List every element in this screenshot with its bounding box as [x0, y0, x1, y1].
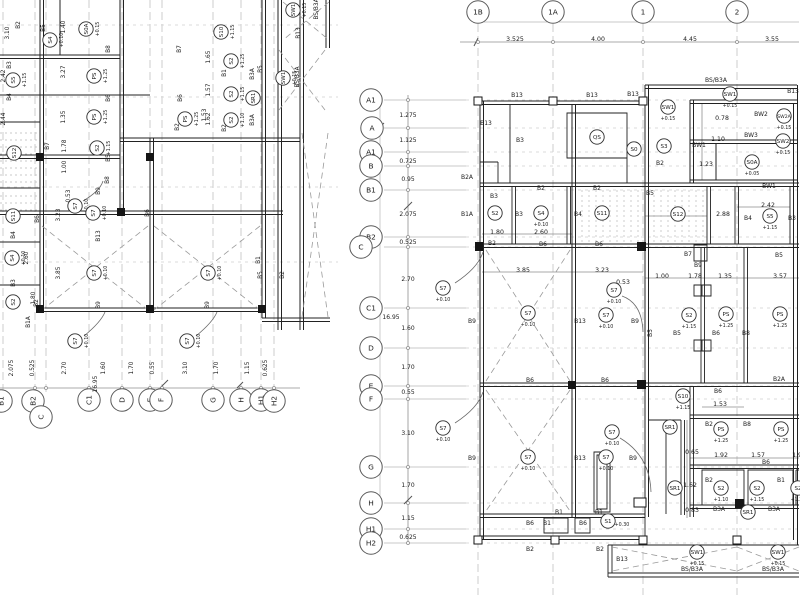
slab-label: S7+0.10	[68, 334, 90, 349]
svg-text:+0.10: +0.10	[607, 299, 622, 305]
slab-label: S2+1.10	[714, 481, 729, 503]
svg-text:+0.10: +0.10	[84, 334, 90, 349]
beam-label: B2	[526, 546, 534, 553]
svg-text:+1.15: +1.15	[750, 497, 765, 503]
dim-label: 1.60	[401, 325, 415, 332]
dim-label: 0.65	[685, 449, 699, 456]
svg-text:B3A: B3A	[250, 114, 256, 126]
dim-label: 1.60	[101, 361, 107, 374]
svg-text:B3: B3	[516, 137, 524, 144]
beam-label: B1	[543, 520, 551, 527]
svg-text:S2: S2	[229, 116, 235, 123]
beam-label: B6	[526, 377, 534, 384]
slab-label: PS+1.25	[774, 422, 789, 444]
svg-text:B4: B4	[7, 93, 13, 101]
svg-text:2.44: 2.44	[1, 112, 7, 125]
slab-label: SW2+0.15	[776, 134, 791, 156]
dim-label: 3.27	[61, 65, 67, 78]
beam-label: B9	[631, 318, 639, 325]
svg-text:B9: B9	[694, 262, 702, 269]
svg-text:S10: S10	[219, 26, 225, 37]
slab-label: PS+1.25	[773, 307, 788, 329]
svg-text:B13: B13	[96, 230, 102, 242]
svg-text:BS/B3A: BS/B3A	[681, 566, 704, 573]
svg-text:B4: B4	[11, 231, 17, 239]
slab-label: PS+1.25	[719, 307, 734, 329]
dim-label: 0.55	[401, 389, 415, 396]
svg-text:+1.15: +1.15	[676, 405, 691, 411]
beam-label: B6	[714, 388, 722, 395]
svg-text:+0.15: +0.15	[661, 116, 676, 122]
svg-text:B3A: B3A	[713, 506, 726, 513]
svg-text:1.80: 1.80	[31, 291, 37, 304]
beam-label: B3A	[250, 114, 256, 126]
beam-label: B2	[16, 21, 22, 29]
beam-label: B6	[539, 241, 547, 248]
dim-label: 2.42	[761, 202, 775, 209]
svg-text:1.40: 1.40	[61, 20, 67, 33]
beam-label: B2	[175, 123, 181, 131]
svg-text:H: H	[368, 499, 374, 508]
slab-label: S12	[7, 146, 21, 160]
grid-bubble: D	[111, 389, 133, 411]
dim-label: 1.15	[245, 361, 251, 374]
svg-text:4.00: 4.00	[591, 36, 605, 43]
beam-label: B3A	[713, 506, 726, 513]
beam-label: B1	[777, 477, 785, 484]
beam-label: B3A	[250, 68, 256, 80]
svg-text:B7: B7	[45, 142, 51, 150]
slab-label: S2	[488, 206, 502, 220]
svg-text:B3A: B3A	[250, 68, 256, 80]
grid-bubble: C	[30, 406, 52, 428]
svg-text:BS/B3A: BS/B3A	[295, 66, 301, 87]
slab-label: S7+0.10	[605, 425, 620, 447]
svg-text:C: C	[358, 243, 363, 252]
svg-text:3.525: 3.525	[506, 36, 524, 43]
svg-text:0.83: 0.83	[685, 507, 699, 514]
dim-label: 2.88	[716, 211, 730, 218]
svg-text:G: G	[209, 397, 218, 403]
svg-text:S7: S7	[91, 209, 97, 217]
beam-label: B6	[106, 94, 112, 102]
svg-text:S12: S12	[12, 148, 18, 159]
svg-text:1.70: 1.70	[401, 364, 415, 371]
svg-text:+0.10: +0.10	[605, 441, 620, 447]
dim-label: 1.00	[62, 160, 68, 173]
svg-text:1.70: 1.70	[401, 482, 415, 489]
grid-bubble: 1B	[467, 1, 489, 23]
svg-text:B6: B6	[595, 241, 603, 248]
svg-text:S7: S7	[610, 288, 618, 294]
svg-text:B5: B5	[646, 190, 654, 197]
svg-text:2.70: 2.70	[401, 276, 415, 283]
svg-text:BW2: BW2	[754, 111, 768, 118]
svg-text:1.15: 1.15	[401, 515, 415, 522]
beam-label: B6	[526, 520, 534, 527]
beam-label: B13	[586, 92, 598, 99]
svg-text:SW1: SW1	[291, 3, 297, 16]
svg-text:PS: PS	[777, 312, 784, 318]
svg-text:B6: B6	[579, 520, 587, 527]
beam-label: B5	[775, 252, 783, 259]
svg-text:3.57: 3.57	[773, 273, 787, 280]
svg-text:B5: B5	[258, 65, 264, 73]
svg-text:B2: B2	[526, 546, 534, 553]
beam-label: B5	[673, 330, 681, 337]
beam-label: B2	[705, 477, 713, 484]
svg-text:B13: B13	[511, 92, 523, 99]
svg-text:1.9: 1.9	[792, 452, 800, 459]
grid-bubble: A1	[360, 89, 382, 111]
svg-text:B5: B5	[41, 24, 47, 32]
svg-text:SW1: SW1	[691, 550, 704, 556]
svg-text:B6: B6	[526, 377, 534, 384]
dim-label: 3.525	[506, 36, 524, 43]
svg-text:S3: S3	[660, 144, 668, 150]
beam-label: B9	[468, 455, 476, 462]
dim-label: 1.125	[399, 137, 416, 144]
svg-text:B3: B3	[11, 279, 17, 287]
beam-label: B4	[7, 93, 13, 101]
svg-text:B1: B1	[256, 256, 262, 264]
beam-label: B9	[96, 301, 102, 309]
grid-bubble: H	[360, 492, 382, 514]
dim-label: 1.35	[61, 110, 67, 123]
slab-label: S7+0.10	[436, 421, 451, 443]
beam-label: B13	[574, 318, 586, 325]
right-plan-annotations: 1B1A123.5254.004.453.55A1AA1BB1B2CC1DEFG…	[350, 1, 800, 573]
svg-text:1.10: 1.10	[711, 136, 725, 143]
slab-label: S10+1.15	[214, 25, 236, 40]
svg-text:S2: S2	[491, 211, 498, 217]
svg-text:B9: B9	[468, 318, 476, 325]
svg-text:B2: B2	[222, 124, 228, 132]
svg-text:+0.10: +0.10	[534, 222, 549, 228]
svg-text:SW1: SW1	[772, 550, 785, 556]
svg-text:BW3: BW3	[744, 132, 758, 139]
dim-label: 16.95	[382, 314, 399, 321]
svg-text:B2A: B2A	[461, 174, 474, 181]
beam-label: B2A	[461, 174, 474, 181]
svg-text:+0.10: +0.10	[59, 33, 65, 48]
svg-text:B2: B2	[705, 421, 713, 428]
slab-label: PS+1.25	[178, 112, 200, 127]
svg-text:1.57: 1.57	[751, 452, 765, 459]
svg-text:S4: S4	[537, 211, 545, 217]
slab-label: S2+1.15	[90, 141, 112, 156]
svg-text:+1.25: +1.25	[194, 112, 200, 127]
grid-bubble: 1A	[542, 1, 564, 23]
beam-label: B9	[629, 455, 637, 462]
svg-text:S7: S7	[524, 311, 532, 317]
dim-label: 0.525	[399, 239, 416, 246]
svg-text:2.075: 2.075	[9, 359, 15, 376]
dim-label: 1.57	[751, 452, 765, 459]
svg-text:SW1: SW1	[724, 92, 737, 98]
svg-text:B7: B7	[177, 45, 183, 53]
slab-label: PS+1.25	[714, 422, 729, 444]
svg-text:B5: B5	[673, 330, 681, 337]
svg-text:S7: S7	[439, 426, 447, 432]
svg-text:B13: B13	[480, 120, 492, 127]
svg-text:B13: B13	[616, 556, 628, 563]
svg-text:B1: B1	[0, 396, 6, 406]
svg-text:B3A: B3A	[768, 506, 781, 513]
svg-text:A1: A1	[366, 96, 376, 105]
dim-label: 0.625	[263, 359, 269, 376]
dim-label: 1.62	[206, 112, 212, 125]
svg-text:PS: PS	[723, 312, 730, 318]
svg-text:SW1: SW1	[662, 105, 675, 111]
svg-text:B5: B5	[258, 271, 264, 279]
svg-text:PS: PS	[778, 427, 785, 433]
svg-text:B2: B2	[596, 546, 604, 553]
svg-text:3.27: 3.27	[61, 65, 67, 78]
svg-text:B6: B6	[539, 241, 547, 248]
svg-text:+1.15: +1.15	[106, 141, 112, 156]
dim-label: 1.92	[714, 452, 728, 459]
beam-label: B3A	[768, 506, 781, 513]
dim-label: 0.625	[399, 534, 416, 541]
svg-text:+0.05: +0.05	[745, 171, 760, 177]
dim-label: 0.725	[399, 158, 416, 165]
slab-label: SW1+0.15	[723, 87, 738, 109]
beam-label: B13	[616, 556, 628, 563]
grid-bubble: G	[202, 389, 224, 411]
svg-text:B2: B2	[488, 240, 496, 247]
slab-label: S2+1.15	[750, 481, 765, 503]
slab-label: S7+0.10	[521, 450, 536, 472]
dim-label: 1.23	[699, 161, 713, 168]
svg-text:BS/B3A: BS/B3A	[314, 0, 320, 20]
grid-bubble: C1	[360, 297, 382, 319]
beam-label: B13	[574, 455, 586, 462]
slab-label: SR1	[246, 91, 260, 105]
svg-text:+0.10: +0.10	[436, 437, 451, 443]
dim-label: 3.10	[401, 430, 415, 437]
svg-text:B13: B13	[574, 455, 586, 462]
svg-text:+0.15: +0.15	[95, 22, 101, 37]
beam-label: B2	[593, 185, 601, 192]
grid-bubble: H2	[263, 390, 285, 412]
beam-label: B5	[41, 24, 47, 32]
svg-text:D: D	[368, 344, 374, 353]
beam-label: B1	[555, 509, 563, 516]
slab-label: PS+1.25	[87, 110, 109, 125]
beam-label: B6	[178, 94, 184, 102]
svg-text:PS: PS	[718, 427, 725, 433]
svg-text:B13: B13	[627, 91, 639, 98]
beam-label: B4	[11, 231, 17, 239]
svg-text:B8: B8	[105, 176, 111, 184]
grid-bubble: G	[360, 456, 382, 478]
svg-text:H2: H2	[366, 539, 376, 548]
svg-text:+0.10: +0.10	[103, 266, 109, 281]
svg-text:3.55: 3.55	[765, 36, 779, 43]
svg-text:B4: B4	[574, 211, 582, 218]
slab-label: S2+1.25	[791, 481, 800, 503]
slab-label: SW1+0.15	[771, 545, 786, 567]
beam-label: B3	[516, 137, 524, 144]
svg-text:1.35: 1.35	[718, 273, 732, 280]
svg-text:D: D	[118, 397, 127, 403]
svg-text:+1.25: +1.25	[773, 323, 788, 329]
dim-label: 1.78	[688, 273, 702, 280]
svg-text:B13: B13	[574, 318, 586, 325]
svg-text:A: A	[369, 124, 374, 133]
svg-text:16.95: 16.95	[93, 375, 99, 392]
svg-text:+1.10: +1.10	[240, 113, 246, 128]
dim-label: 2.44	[1, 112, 7, 125]
svg-text:S11: S11	[11, 210, 17, 221]
dim-label: 0.53	[66, 189, 72, 202]
dim-label: 3.10	[183, 361, 189, 374]
grid-bubble: F	[360, 388, 382, 410]
drawing-canvas: 1B1A123.5254.004.453.55A1AA1BB1B2CC1DEFG…	[0, 0, 800, 600]
svg-text:B3: B3	[7, 61, 13, 69]
dim-label: 2.70	[401, 276, 415, 283]
dim-label: 0.55	[150, 361, 156, 374]
svg-text:+0.10: +0.10	[436, 297, 451, 303]
svg-text:3.23: 3.23	[56, 208, 62, 221]
svg-text:B6: B6	[714, 388, 722, 395]
dim-label: 3.23	[595, 267, 609, 274]
slab-label: S0	[627, 142, 641, 156]
beam-label: B1	[222, 69, 228, 77]
slab-label: S7+0.10	[436, 281, 451, 303]
dim-label: 4.00	[591, 36, 605, 43]
svg-text:B2: B2	[537, 185, 545, 192]
svg-text:S7: S7	[73, 337, 79, 345]
dim-label: 1.10	[711, 136, 725, 143]
beam-label: B9	[468, 318, 476, 325]
svg-text:S4: S4	[48, 36, 54, 44]
svg-text:2.42: 2.42	[761, 202, 775, 209]
svg-text:B2: B2	[705, 477, 713, 484]
beam-label: B2	[280, 271, 286, 279]
beam-label: BS/B3A	[295, 66, 301, 87]
grid-bubble: B1	[0, 390, 12, 412]
svg-text:+1.25: +1.25	[103, 69, 109, 84]
svg-text:B6: B6	[35, 215, 41, 223]
svg-text:2.60: 2.60	[534, 229, 548, 236]
svg-text:S7: S7	[73, 202, 79, 210]
svg-text:SR1: SR1	[665, 425, 676, 431]
svg-text:S2: S2	[753, 486, 760, 492]
beam-label: BS/B3A	[762, 566, 785, 573]
svg-text:C1: C1	[366, 304, 376, 313]
beam-label: B1	[256, 256, 262, 264]
beam-label: B6	[579, 520, 587, 527]
svg-text:0.725: 0.725	[399, 158, 416, 165]
beam-label: B6	[712, 330, 720, 337]
svg-text:B1: B1	[366, 186, 376, 195]
beam-label: BS/B3A	[681, 566, 704, 573]
beam-label: B5	[258, 271, 264, 279]
svg-text:B5: B5	[775, 252, 783, 259]
svg-text:B1: B1	[222, 69, 228, 77]
svg-text:BS/B3A: BS/B3A	[705, 77, 728, 84]
svg-text:PS: PS	[92, 72, 98, 79]
svg-text:3.85: 3.85	[516, 267, 530, 274]
dim-label: 1.62	[683, 482, 697, 489]
svg-text:C1: C1	[85, 395, 94, 405]
svg-text:1.78: 1.78	[688, 273, 702, 280]
svg-text:B8: B8	[742, 330, 750, 337]
svg-text:1.15: 1.15	[245, 361, 251, 374]
slab-label: SW2A+0.15	[777, 109, 792, 131]
svg-text:SW1: SW1	[281, 71, 287, 84]
svg-text:+1.25: +1.25	[103, 110, 109, 125]
beam-label: B5	[647, 329, 654, 337]
svg-text:B5: B5	[106, 154, 112, 162]
beam-label: B2A	[773, 376, 786, 383]
beam-label: BW3	[744, 132, 758, 139]
slab-label: SW1+0.15	[286, 3, 308, 18]
beam-label: B7	[684, 251, 692, 258]
svg-text:QS: QS	[593, 135, 601, 141]
beam-label: B1A	[461, 211, 474, 218]
dim-label: 2.075	[399, 211, 416, 218]
svg-text:1.00: 1.00	[62, 160, 68, 173]
dim-label: 1.70	[214, 361, 220, 374]
slab-label: SW1+0.15	[661, 100, 676, 122]
slab-label: S4+0.10	[534, 206, 549, 228]
svg-text:B1: B1	[543, 520, 551, 527]
svg-text:3.10: 3.10	[183, 361, 189, 374]
beam-label: B2	[222, 124, 228, 132]
beam-label: B2	[596, 546, 604, 553]
svg-text:S0: S0	[630, 147, 638, 153]
grid-bubble: B	[360, 155, 382, 177]
beam-label: B13	[511, 92, 523, 99]
beam-label: B3	[515, 211, 523, 218]
svg-text:SW2A: SW2A	[777, 114, 791, 120]
dim-label: 1.53	[713, 401, 727, 408]
beam-label: B8	[106, 45, 112, 53]
beam-label: B13	[627, 91, 639, 98]
beam-label: B2	[537, 185, 545, 192]
beam-label: B5	[106, 154, 112, 162]
dim-label: 4.45	[683, 36, 697, 43]
beam-label: B1	[595, 509, 603, 516]
svg-text:F: F	[157, 398, 166, 402]
svg-text:+0.15: +0.15	[723, 103, 738, 109]
dim-label: 1.80	[31, 291, 37, 304]
slab-label: S1+0.30	[601, 514, 630, 528]
beam-label: B2	[656, 160, 664, 167]
svg-text:S7: S7	[206, 269, 212, 277]
beam-label: B8	[743, 421, 751, 428]
beam-label: BW1	[762, 183, 776, 190]
svg-text:H2: H2	[270, 396, 279, 406]
svg-text:S2: S2	[717, 486, 724, 492]
svg-text:B: B	[368, 162, 373, 171]
svg-text:B9: B9	[205, 301, 211, 309]
beam-label: B2	[705, 421, 713, 428]
svg-text:0.53: 0.53	[66, 189, 72, 202]
svg-text:B2: B2	[280, 271, 286, 279]
svg-text:+1.25: +1.25	[714, 438, 729, 444]
svg-text:B2: B2	[593, 185, 601, 192]
svg-text:B6: B6	[601, 377, 609, 384]
svg-text:1.78: 1.78	[62, 139, 68, 152]
grid-bubble: H	[230, 389, 252, 411]
dim-label: 1.15	[401, 515, 415, 522]
svg-text:S7: S7	[608, 430, 616, 436]
svg-text:S2: S2	[685, 313, 692, 319]
